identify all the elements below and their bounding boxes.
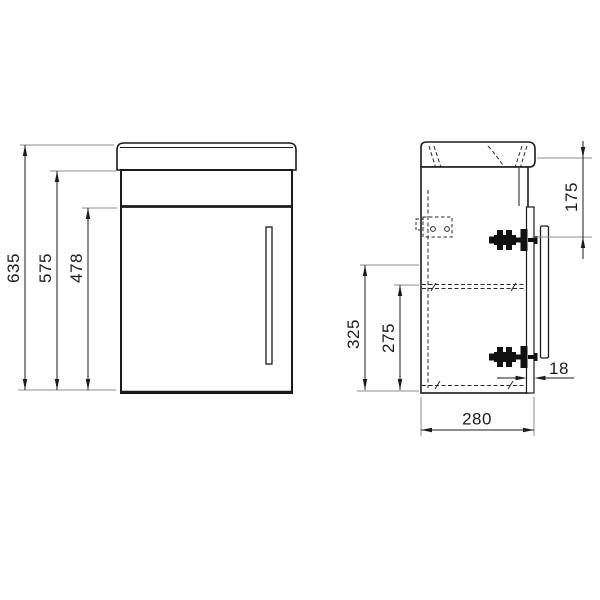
dim-label-overall-height: 635 [4, 253, 23, 283]
arrowhead [363, 379, 367, 390]
dim-label-door-thickness: 18 [549, 359, 569, 378]
arrowhead [523, 428, 534, 432]
dim-top-to-hinge: 175 [562, 141, 585, 259]
door-handle-front [266, 227, 272, 364]
arrowhead [398, 379, 402, 390]
dim-label-height-275: 275 [379, 323, 398, 353]
side-view [416, 142, 549, 393]
dim-label-top-to-hinge: 175 [562, 182, 581, 212]
dim-label-door-height: 478 [67, 253, 86, 283]
door-side [527, 207, 535, 393]
arrowhead [55, 379, 59, 390]
dim-depth: 280 [421, 410, 534, 433]
arrowhead [421, 428, 432, 432]
arrowhead [581, 147, 585, 158]
front-view [117, 143, 296, 393]
arrowhead [55, 171, 59, 182]
dim-label-depth: 280 [462, 410, 492, 429]
dim-height-275: 275 [379, 285, 402, 390]
arrowhead [86, 208, 90, 219]
technical-drawing: 635 575 478 175 325 [0, 0, 600, 600]
dim-label-cabinet-height: 575 [36, 253, 55, 283]
dim-height-325: 325 [344, 265, 367, 390]
dim-overall-height: 635 [4, 145, 27, 390]
arrowhead [23, 145, 27, 156]
arrowhead [86, 379, 90, 390]
arrowhead [398, 285, 402, 296]
drawing-canvas: 635 575 478 175 325 [0, 0, 600, 600]
arrowhead [363, 265, 367, 276]
dim-label-height-325: 325 [344, 319, 363, 349]
front-dimensions: 635 575 478 [4, 145, 90, 390]
arrowhead [535, 376, 546, 380]
door-handle-side [541, 226, 549, 358]
dim-cabinet-height: 575 [36, 171, 59, 390]
basin-side [421, 142, 535, 167]
arrowhead [581, 237, 585, 248]
arrowhead [23, 379, 27, 390]
dim-door-height: 478 [67, 208, 90, 390]
